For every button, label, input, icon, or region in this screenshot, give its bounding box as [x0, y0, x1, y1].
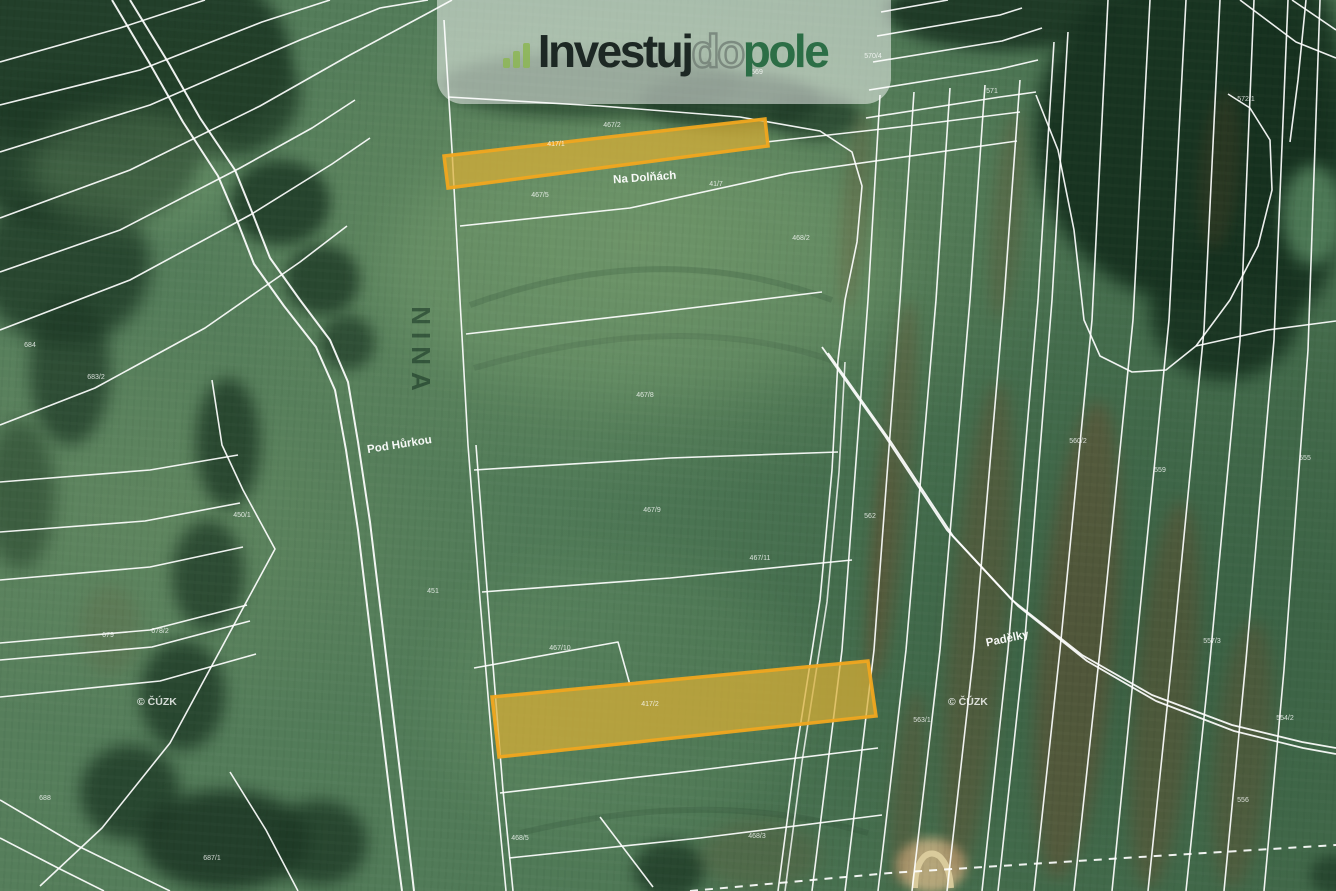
parcel-number: 563/1: [913, 717, 931, 724]
parcel-number: 684: [24, 342, 36, 349]
boundary-line: [0, 503, 240, 532]
parcel-number: 41/7: [709, 181, 723, 188]
field-name-na-dolnach: Na Dolňách: [613, 170, 677, 186]
boundary-line: [0, 654, 256, 697]
boundary-line: [1148, 0, 1220, 891]
parcel-number: 467/10: [549, 645, 571, 652]
satellite-cadastral-map: 467/2417/1467/541/7468/2467/8467/9451450…: [0, 0, 1336, 891]
parcel-number: 556: [1237, 797, 1249, 804]
highlighted-parcel-north: [444, 119, 768, 188]
boundary-line: [877, 8, 1022, 36]
boundary-line: [828, 353, 1336, 754]
boundary-line: [1290, 0, 1306, 142]
cadastral-overlay: 467/2417/1467/541/7468/2467/8467/9451450…: [0, 0, 1336, 891]
parcel-number: 562: [864, 513, 876, 520]
copyright-watermark-left: © ČÚZK: [137, 695, 177, 708]
parcel-number: 451: [427, 588, 439, 595]
parcel-number: 467/9: [643, 507, 661, 514]
boundary-line: [466, 292, 822, 334]
parcel-number: 555: [1299, 455, 1311, 462]
boundary-line: [690, 845, 1336, 891]
brand-text-pole: pole: [743, 28, 828, 74]
boundary-line: [1196, 321, 1336, 346]
boundary-line: [1292, 0, 1336, 30]
parcel-number: 417/1: [547, 141, 565, 148]
field-name-pod-hurkou: Pod Hůrkou: [366, 434, 432, 456]
brand-text-investuj: Investuj: [538, 28, 692, 74]
boundary-line: [474, 452, 838, 470]
boundary-line: [600, 817, 653, 887]
boundary-line: [866, 92, 1036, 118]
boundary-line: [998, 32, 1068, 891]
parcel-number: 560/2: [1069, 438, 1087, 445]
parcel-number: 468/2: [792, 235, 810, 242]
parcel-number: 468/5: [511, 835, 529, 842]
boundary-line: [1112, 0, 1186, 891]
boundary-line: [778, 360, 838, 891]
boundary-line: [0, 0, 452, 218]
parcel-number: 467/8: [636, 392, 654, 399]
boundary-line: [947, 80, 1020, 891]
parcel-number: 559: [1154, 467, 1166, 474]
boundary-line: [230, 772, 298, 891]
bar-chart-icon: [501, 38, 535, 75]
boundary-line: [1034, 0, 1108, 891]
parcel-number: 557/3: [1203, 638, 1221, 645]
parcel-number: 554/2: [1276, 715, 1294, 722]
boundary-line: [0, 800, 170, 891]
boundary-line: [476, 445, 513, 891]
boundary-line: [0, 605, 247, 643]
boundary-line: [1264, 0, 1320, 891]
parcel-number: 688: [39, 795, 51, 802]
boundary-line: [482, 560, 852, 592]
parcel-number: 679: [102, 632, 114, 639]
parcel-number: 683/2: [87, 374, 105, 381]
boundary-line: [785, 362, 845, 891]
boundary-line: [812, 95, 880, 891]
boundary-line: [878, 88, 950, 891]
boundary-line: [845, 92, 914, 891]
field-name-nina: NINA: [406, 306, 436, 398]
parcel-number: 467/11: [750, 555, 771, 562]
boundary-line: [822, 347, 1336, 748]
boundary-line: [500, 748, 878, 793]
boundary-line: [0, 100, 355, 272]
parcel-number: 417/2: [641, 701, 659, 708]
boundary-line: [1036, 94, 1272, 372]
boundary-line: [1224, 0, 1288, 891]
boundary-line: [0, 838, 104, 891]
parcel-number: 450/1: [233, 512, 251, 519]
boundary-line: [0, 547, 243, 580]
parcel-number: 571: [986, 88, 998, 95]
boundary-line: [0, 455, 238, 482]
parcel-number: 467/2: [603, 122, 621, 129]
boundary-line: [982, 42, 1054, 891]
boundary-line: [1186, 0, 1254, 891]
boundary-line: [881, 0, 948, 12]
parcel-number: 678/2: [151, 628, 169, 635]
boundary-line: [869, 60, 1038, 90]
parcel-number: 687/1: [203, 855, 221, 862]
boundary-line: [912, 85, 985, 891]
parcel-number: 572/1: [1237, 96, 1255, 103]
watermark-logo: Investujdopole: [437, 0, 891, 104]
boundary-line: [0, 138, 370, 330]
parcel-number: 468/3: [748, 833, 766, 840]
boundary-line: [0, 0, 205, 62]
brand-text-do: do: [692, 28, 743, 74]
highlighted-parcel-south: [492, 661, 876, 757]
copyright-watermark-right: © ČÚZK: [948, 695, 988, 708]
boundary-line: [1074, 0, 1150, 891]
parcel-number: 467/5: [531, 192, 549, 199]
